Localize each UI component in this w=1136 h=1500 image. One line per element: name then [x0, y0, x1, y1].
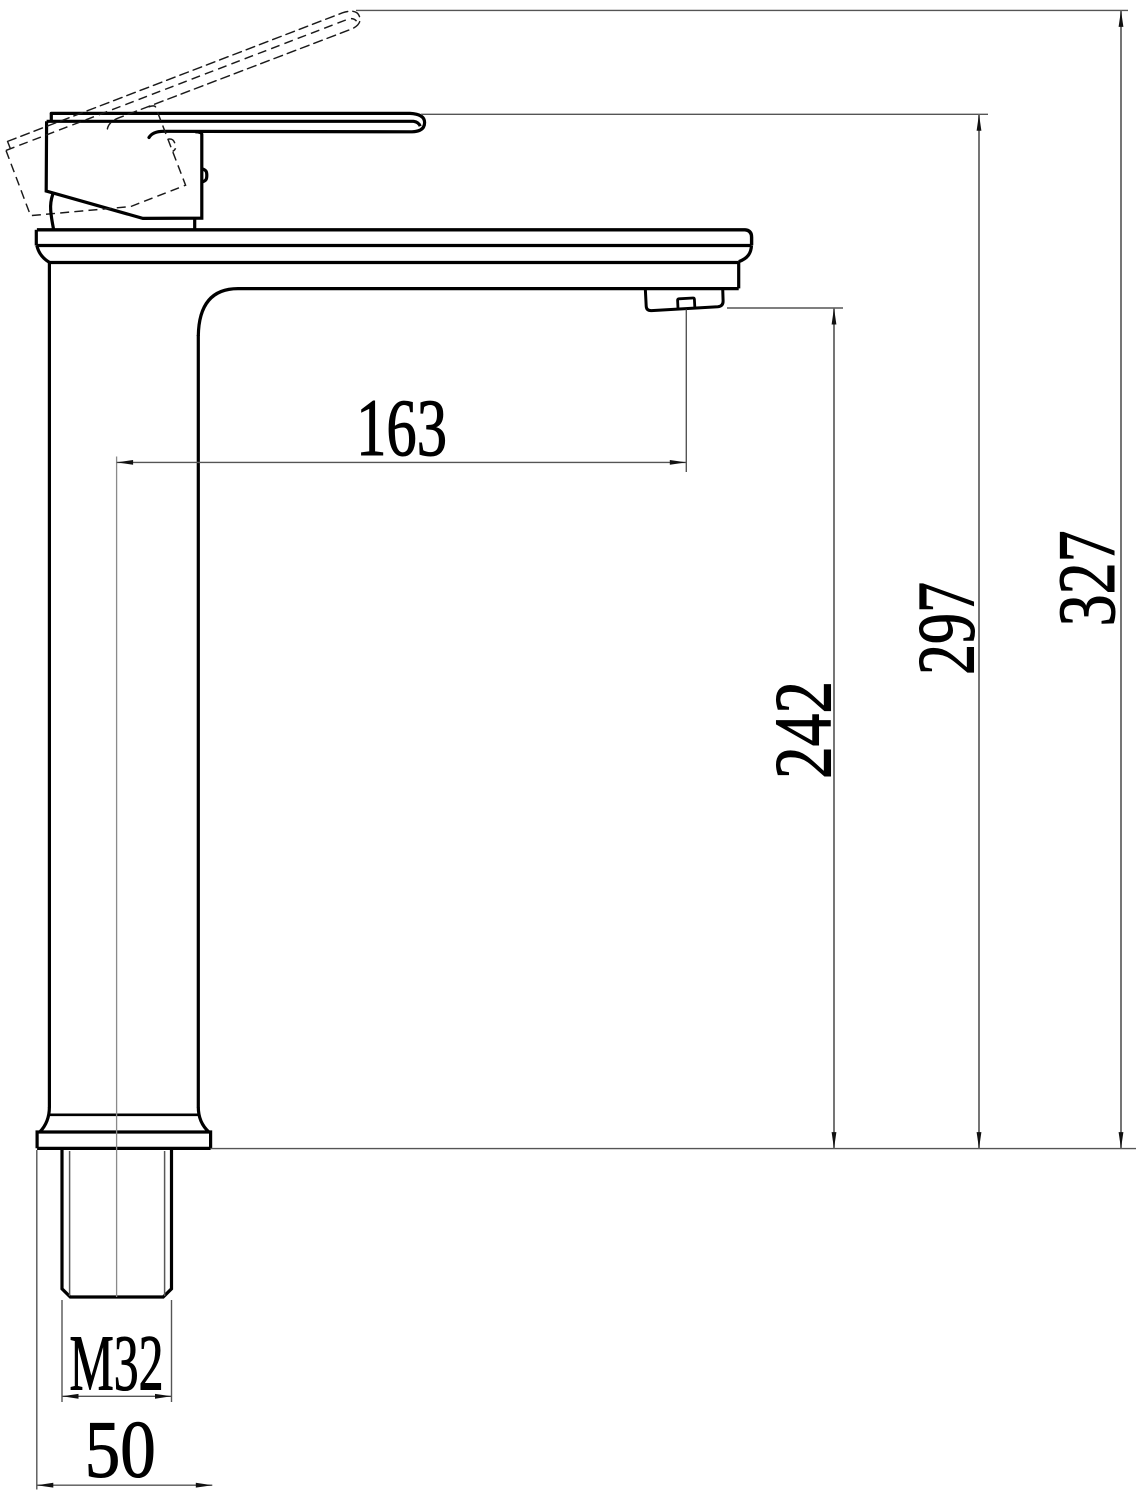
svg-text:297: 297: [901, 582, 992, 675]
svg-text:M32: M32: [70, 1321, 164, 1408]
svg-text:50: 50: [85, 1404, 156, 1495]
svg-text:163: 163: [356, 382, 447, 473]
svg-text:242: 242: [758, 681, 849, 779]
svg-text:327: 327: [1041, 530, 1132, 626]
